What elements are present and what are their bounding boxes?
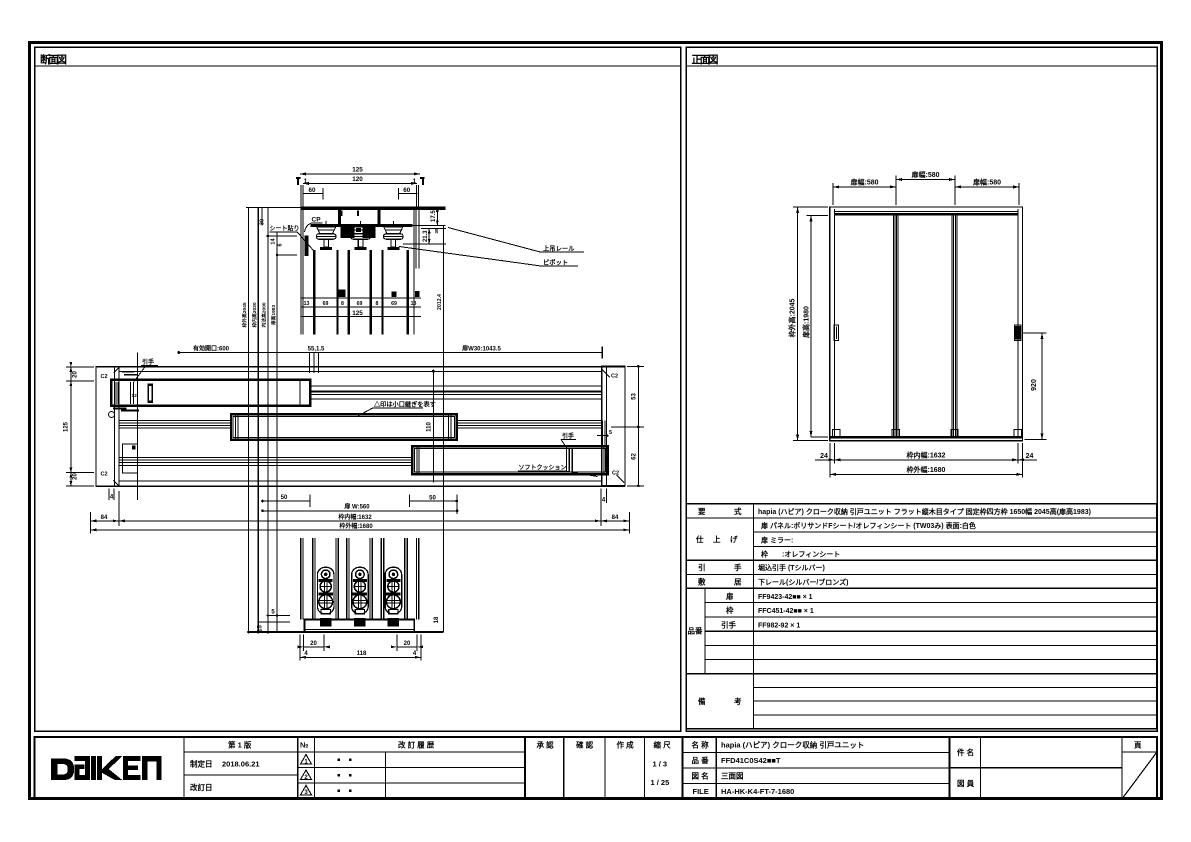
svg-text:13: 13 xyxy=(304,301,310,307)
svg-text:8: 8 xyxy=(341,301,344,307)
svg-text:図 員: 図 員 xyxy=(957,778,975,788)
svg-text:△印は小口継ぎを表す: △印は小口継ぎを表す xyxy=(373,400,436,408)
svg-text:確 認: 確 認 xyxy=(575,740,594,750)
svg-text:125: 125 xyxy=(352,310,363,317)
svg-text:C2: C2 xyxy=(101,374,108,380)
svg-text:品番: 品番 xyxy=(688,626,703,636)
svg-text:17.5: 17.5 xyxy=(431,210,437,222)
svg-text:55,1.5: 55,1.5 xyxy=(308,346,325,352)
svg-text:60: 60 xyxy=(403,187,411,194)
svg-text:hapia (ハピア) クローク収納 引戸ユニット: hapia (ハピア) クローク収納 引戸ユニット xyxy=(721,740,864,750)
svg-text:120: 120 xyxy=(352,176,363,183)
svg-text:38: 38 xyxy=(434,228,440,234)
svg-text:20: 20 xyxy=(73,473,79,480)
svg-text:縮 尺: 縮 尺 xyxy=(654,740,672,750)
svg-text:14: 14 xyxy=(271,238,277,245)
svg-text:2012.4: 2012.4 xyxy=(437,294,443,310)
svg-text:5: 5 xyxy=(609,430,612,436)
svg-text:断面図: 断面図 xyxy=(40,53,67,66)
svg-text:50: 50 xyxy=(429,496,436,502)
svg-text:扉幅:580: 扉幅:580 xyxy=(910,170,939,179)
svg-text:式: 式 xyxy=(734,506,742,516)
svg-text:18: 18 xyxy=(434,616,440,623)
svg-text:扉幅:580: 扉幅:580 xyxy=(972,177,1001,186)
svg-text:枠内幅:1632: 枠内幅:1632 xyxy=(907,450,946,459)
svg-text:53: 53 xyxy=(632,393,638,400)
svg-text:枠内幅:1632: 枠内幅:1632 xyxy=(338,513,372,521)
svg-text:三面図: 三面図 xyxy=(721,772,744,781)
svg-text:枠外高:2045: 枠外高:2045 xyxy=(788,298,797,337)
svg-text:69: 69 xyxy=(357,301,363,307)
svg-text:HA-HK-K4-FT-7-1680: HA-HK-K4-FT-7-1680 xyxy=(721,787,794,796)
svg-text:C2: C2 xyxy=(611,374,618,380)
svg-text:枠: 枠 xyxy=(725,605,734,615)
svg-text:制定日: 制定日 xyxy=(190,759,213,769)
svg-text:FF982-92 × 1: FF982-92 × 1 xyxy=(758,622,800,629)
svg-text:第 1 版: 第 1 版 xyxy=(228,740,252,750)
svg-text:シート貼り: シート貼り xyxy=(270,224,300,232)
svg-text:正面図: 正面図 xyxy=(692,54,719,66)
svg-text:作 成: 作 成 xyxy=(617,740,635,750)
svg-text:枠 :オレフィンシート: 枠 :オレフィンシート xyxy=(761,550,840,559)
svg-text:118: 118 xyxy=(357,651,367,657)
svg-text:1: 1 xyxy=(304,178,308,185)
svg-text:FF9423-42■■ × 1: FF9423-42■■ × 1 xyxy=(758,594,813,601)
svg-text:枠外幅:1680: 枠外幅:1680 xyxy=(907,465,946,474)
svg-text:60: 60 xyxy=(308,187,316,194)
svg-text:扉 ミラー:: 扉 ミラー: xyxy=(760,535,793,544)
svg-text:扉 W:560: 扉 W:560 xyxy=(343,503,370,511)
svg-text:50: 50 xyxy=(281,495,288,501)
svg-text:改 訂 履 歴: 改 訂 履 歴 xyxy=(398,740,435,750)
svg-text:20: 20 xyxy=(310,641,317,647)
svg-text:堀込引手 (Tシルバー): 堀込引手 (Tシルバー) xyxy=(758,563,825,572)
svg-text:有効開口:600: 有効開口:600 xyxy=(193,344,230,352)
svg-text:扉 パネル:ポリサンドFシート/オレフィンシート (TW03: 扉 パネル:ポリサンドFシート/オレフィンシート (TW03み) 表面:白色 xyxy=(760,521,976,530)
svg-text:FFD41C0S42■■T: FFD41C0S42■■T xyxy=(721,756,781,765)
svg-text:上: 上 xyxy=(713,534,721,544)
svg-text:扉: 扉 xyxy=(725,591,734,601)
svg-text:承 認: 承 認 xyxy=(537,740,555,750)
svg-text:20: 20 xyxy=(404,641,411,647)
svg-text:84: 84 xyxy=(101,515,108,521)
svg-text:枠内高2030: 枠内高2030 xyxy=(251,302,258,327)
svg-text:上吊レール: 上吊レール xyxy=(543,244,575,253)
svg-text:考: 考 xyxy=(734,696,742,706)
svg-text:69: 69 xyxy=(391,301,397,307)
svg-text:FFC451-42■■ × 1: FFC451-42■■ × 1 xyxy=(758,608,814,615)
svg-text:備: 備 xyxy=(698,696,706,706)
svg-text:20: 20 xyxy=(73,371,79,378)
svg-text:2018.06.21: 2018.06.21 xyxy=(222,760,260,769)
svg-text:扉高:1980: 扉高:1980 xyxy=(801,306,810,339)
svg-text:扉幅:580: 扉幅:580 xyxy=(849,177,878,186)
svg-text:枠外高2045: 枠外高2045 xyxy=(241,302,248,327)
svg-text:ソフトクッション: ソフトクッション xyxy=(519,463,567,471)
svg-text:1 / 25: 1 / 25 xyxy=(651,778,670,787)
svg-text:84: 84 xyxy=(612,515,619,521)
svg-text:要: 要 xyxy=(698,507,706,516)
svg-text:125: 125 xyxy=(63,421,69,432)
svg-text:名 称: 名 称 xyxy=(692,740,710,750)
svg-text:6: 6 xyxy=(277,243,283,246)
svg-text:引手: 引手 xyxy=(721,619,736,629)
svg-text:13: 13 xyxy=(411,301,417,307)
svg-text:1: 1 xyxy=(413,178,417,185)
svg-text:図 名: 図 名 xyxy=(692,771,709,781)
svg-text:引手: 引手 xyxy=(562,432,574,440)
svg-text:1 / 3: 1 / 3 xyxy=(653,760,668,769)
svg-text:扉W30:1043.5: 扉W30:1043.5 xyxy=(461,344,501,352)
svg-text:ピボット: ピボット xyxy=(543,258,568,267)
svg-text:FILE: FILE xyxy=(693,787,709,796)
svg-text:69: 69 xyxy=(323,301,329,307)
svg-text:15: 15 xyxy=(258,625,264,632)
svg-text:げ: げ xyxy=(730,534,738,544)
svg-text:枠外幅:1680: 枠外幅:1680 xyxy=(339,522,373,530)
svg-text:敷: 敷 xyxy=(698,576,706,586)
svg-text:125: 125 xyxy=(352,167,363,174)
svg-text:仕: 仕 xyxy=(695,534,704,544)
svg-text:居: 居 xyxy=(734,577,742,586)
svg-text:改訂日: 改訂日 xyxy=(190,782,213,792)
svg-text:24: 24 xyxy=(820,453,828,460)
svg-text:品 番: 品 番 xyxy=(692,755,710,765)
svg-text:hapia (ハピア) クローク収納 引戸ユニット フラッ: hapia (ハピア) クローク収納 引戸ユニット フラット縦木目タイプ 固定枠… xyxy=(758,507,1091,516)
svg-text:920: 920 xyxy=(1031,379,1038,391)
svg-text:扉高1983: 扉高1983 xyxy=(270,305,277,326)
svg-text:引: 引 xyxy=(698,562,706,572)
svg-text:62: 62 xyxy=(632,453,638,460)
svg-text:件 名: 件 名 xyxy=(957,747,974,757)
svg-text:30: 30 xyxy=(260,219,266,225)
svg-text:12: 12 xyxy=(132,393,138,399)
svg-text:頁: 頁 xyxy=(1134,741,1142,750)
svg-text:24: 24 xyxy=(1026,453,1034,460)
svg-text:110: 110 xyxy=(427,422,433,432)
svg-text:下レール(シルバー/ブロンズ): 下レール(シルバー/ブロンズ) xyxy=(758,577,848,586)
svg-text:C2: C2 xyxy=(612,470,619,476)
svg-text:№: № xyxy=(300,741,308,750)
svg-text:21.3: 21.3 xyxy=(423,230,429,242)
svg-text:8: 8 xyxy=(376,301,379,307)
svg-text:C2: C2 xyxy=(101,471,108,477)
svg-text:手: 手 xyxy=(734,562,742,572)
svg-text:内法高2000: 内法高2000 xyxy=(261,302,268,327)
